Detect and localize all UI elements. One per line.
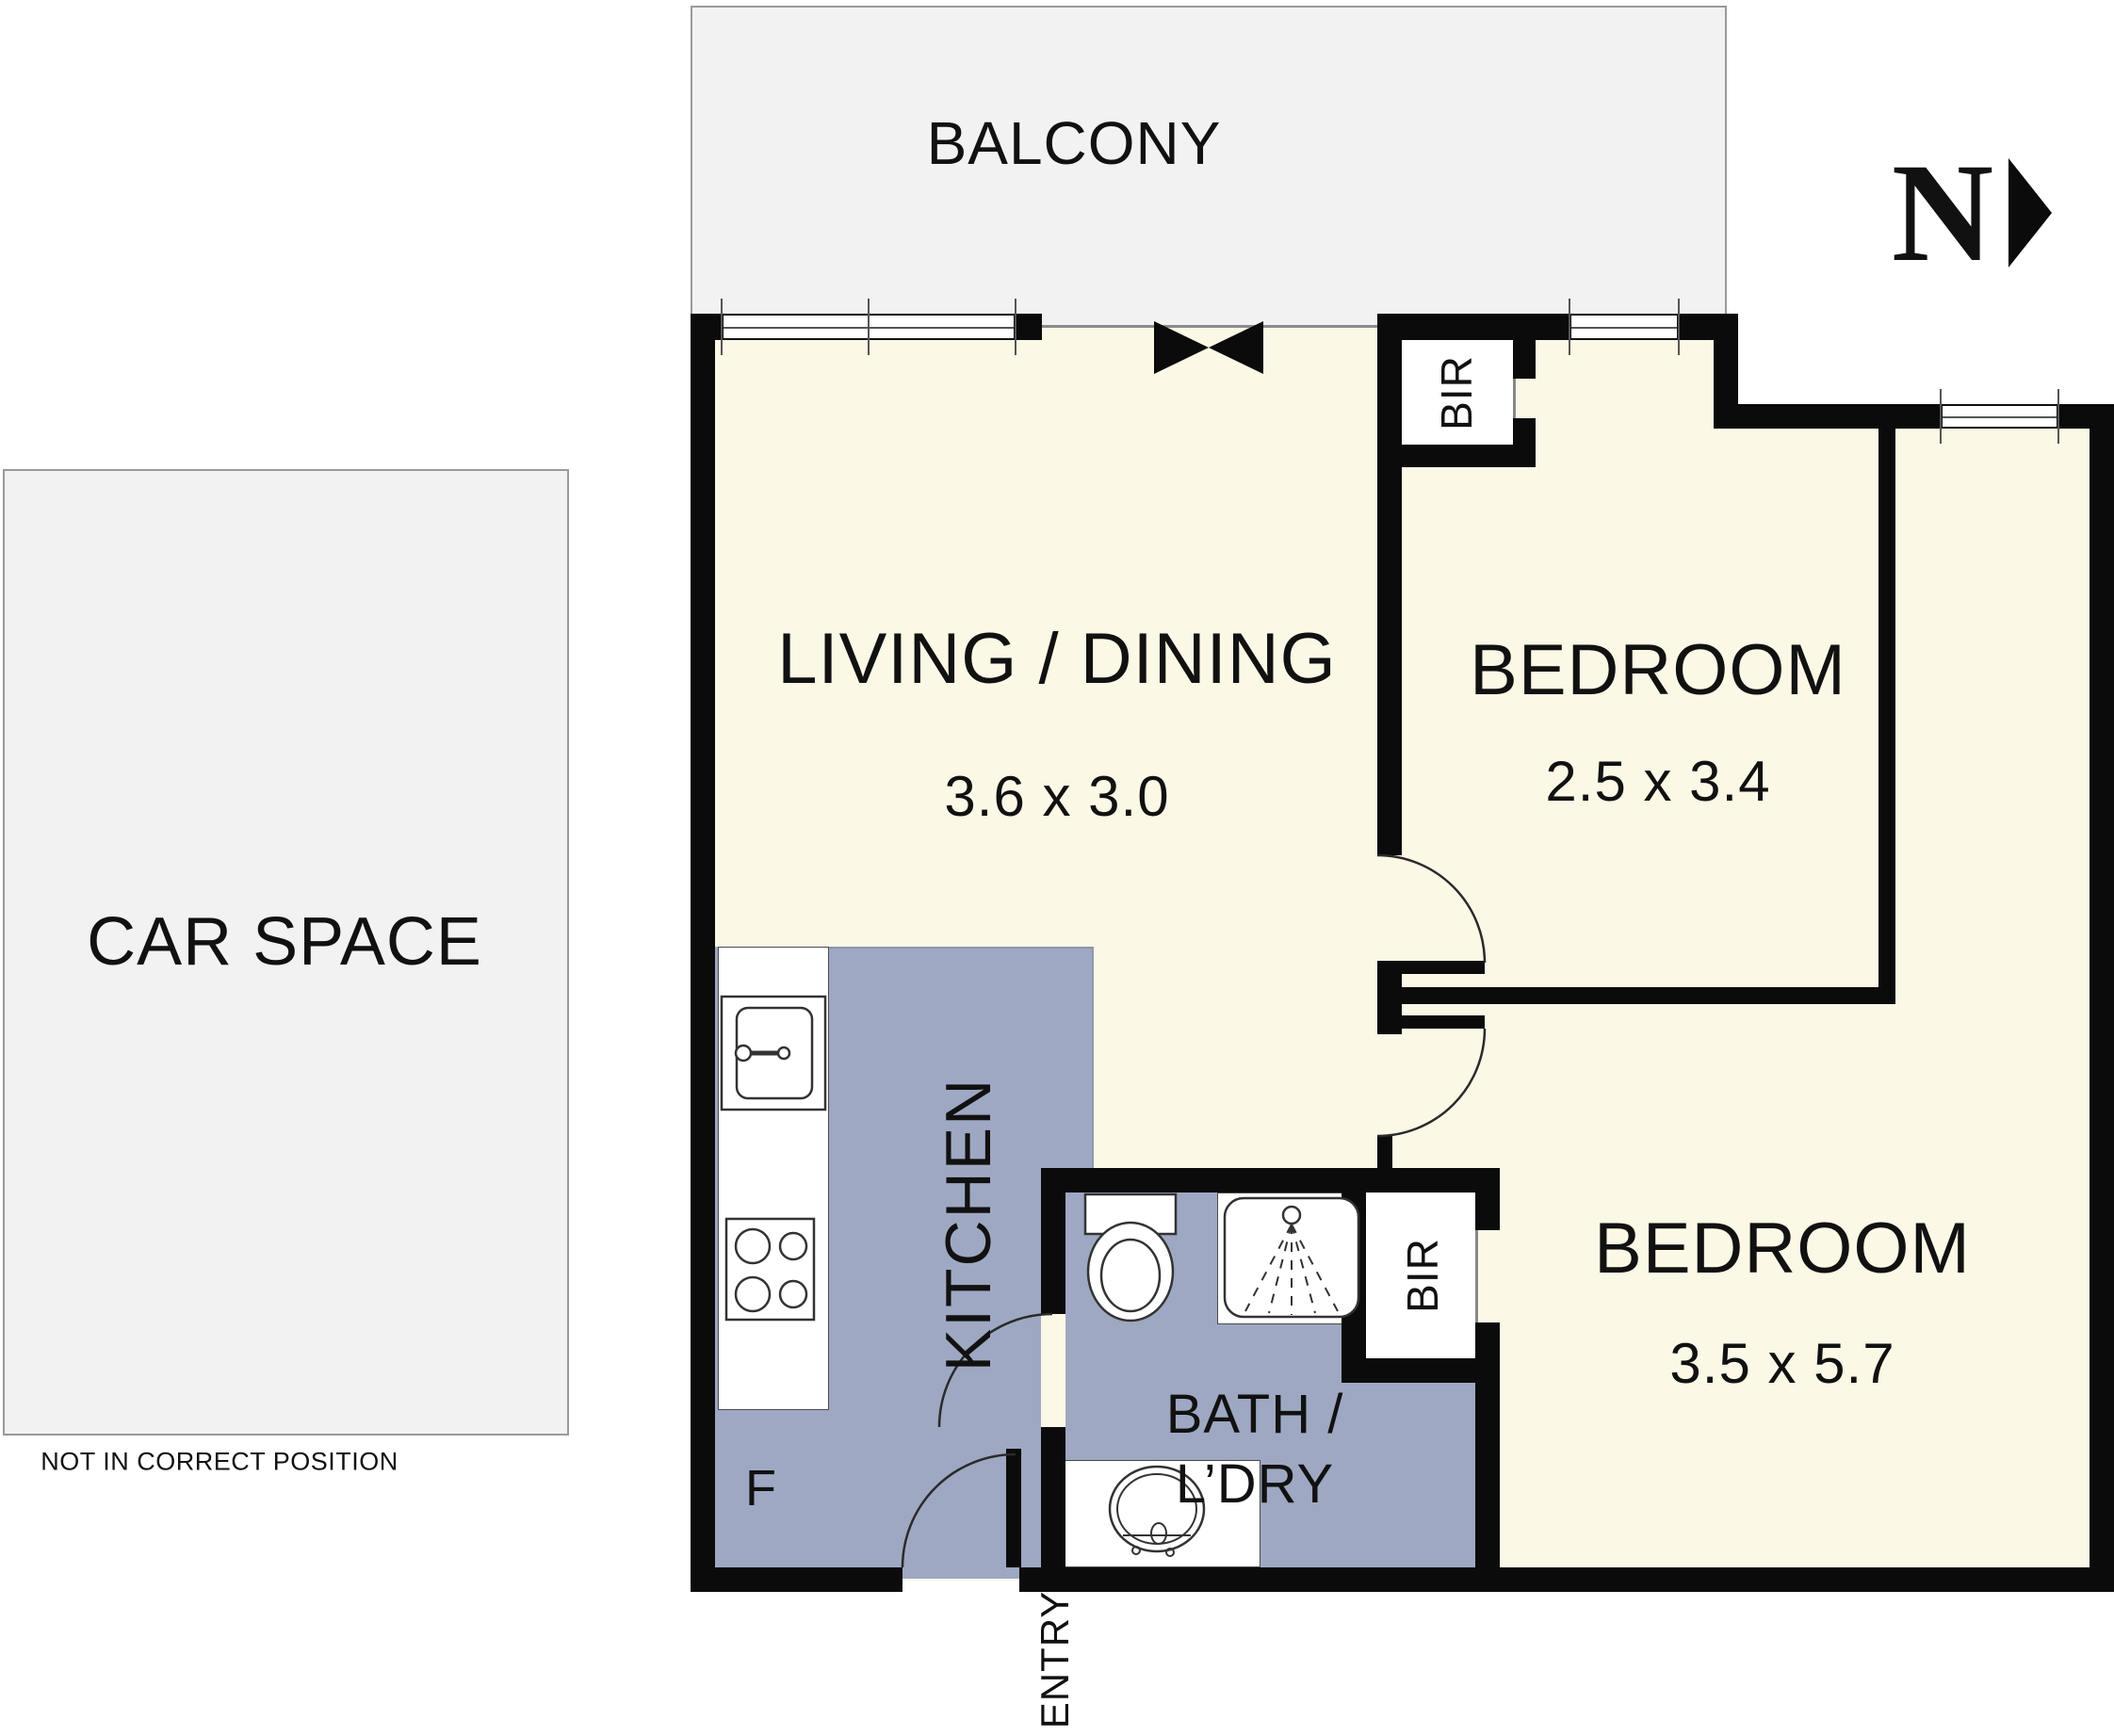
bir2-opening-line [1475, 1230, 1478, 1322]
wall-top-a [691, 314, 724, 340]
wall-bir2-stub-bottom [1475, 1322, 1500, 1358]
wall-bath-left-upper [1041, 1168, 1065, 1314]
bedroom2-dims: 3.5 x 5.7 [1669, 1336, 1894, 1392]
window-tick [868, 299, 870, 355]
wall-bath-bir-separator [1342, 1168, 1366, 1383]
kitchen-boundary-line [1092, 947, 1094, 1170]
living-room-label: LIVING / DINING [777, 624, 1337, 695]
wall-bottom-b [1019, 1567, 2114, 1592]
north-arrow-icon [2008, 158, 2052, 268]
wall-bir1-bottom [1377, 445, 1536, 467]
bed1-door-leaf [1377, 961, 1485, 974]
window-tick [721, 299, 723, 355]
living-room-dims: 3.6 x 3.0 [944, 769, 1169, 825]
entry-label: ENTRY [1035, 1591, 1075, 1729]
bedroom1-label: BEDROOM [1470, 635, 1846, 706]
wall-bed1-left [1377, 327, 1402, 855]
entry-door-leaf [1006, 1449, 1021, 1567]
wall-bedroom-divider [1377, 987, 1895, 1004]
wall-bed2-left-lower [1475, 1383, 1500, 1592]
wall-left [691, 314, 715, 1592]
window-tick [2057, 389, 2059, 444]
bath-label-line2: L’DRY [1176, 1457, 1334, 1512]
window-tick [1569, 299, 1570, 355]
window-mullion [1571, 327, 1677, 329]
window-tick [1015, 299, 1016, 355]
bath-label-line1: BATH / [1166, 1387, 1344, 1442]
kitchen-boundary-line-top [829, 947, 1093, 949]
wall-bath-left-lower [1041, 1427, 1065, 1567]
wall-bir1-stub-bottom [1513, 418, 1536, 445]
wall-right [2090, 404, 2114, 1592]
wall-bath-top [1041, 1168, 1500, 1192]
sliding-door-track [1042, 325, 1377, 328]
bedroom1-dims: 2.5 x 3.4 [1545, 754, 1770, 810]
wall-bir1-stub-top [1513, 340, 1536, 379]
floor-plan: BALCONY N CAR SPACE NOT IN CORRECT POSIT… [0, 0, 2114, 1736]
wall-top-c [1377, 314, 1569, 340]
wall-upper-right-a [1714, 404, 1941, 429]
car-space-note: NOT IN CORRECT POSITION [41, 1450, 398, 1475]
window-bedroom2-icon [1941, 404, 2058, 429]
kitchen-counter [718, 947, 829, 1410]
wall-bed1-right [1878, 417, 1895, 1004]
bir1-label: BIR [1435, 355, 1478, 430]
wall-bir2-bottom [1342, 1358, 1500, 1383]
fridge-label: F [745, 1463, 777, 1514]
window-tick [1940, 389, 1942, 444]
north-label: N [1892, 132, 1993, 294]
bedroom2-label: BEDROOM [1594, 1213, 1971, 1285]
kitchen-label: KITCHEN [936, 1078, 1000, 1371]
balcony-label: BALCONY [927, 113, 1222, 173]
wall-top-b [1016, 314, 1042, 340]
wall-bottom-a [691, 1567, 903, 1592]
wall-bir2-stub-top [1475, 1192, 1500, 1230]
window-bedroom1-icon [1569, 314, 1679, 340]
bir1-opening-line [1513, 379, 1516, 418]
window-mullion [1943, 416, 2057, 418]
bed2-door-leaf [1377, 1015, 1485, 1029]
window-tick [1678, 299, 1680, 355]
car-space-label: CAR SPACE [87, 908, 482, 976]
bir2-label: BIR [1401, 1238, 1444, 1313]
